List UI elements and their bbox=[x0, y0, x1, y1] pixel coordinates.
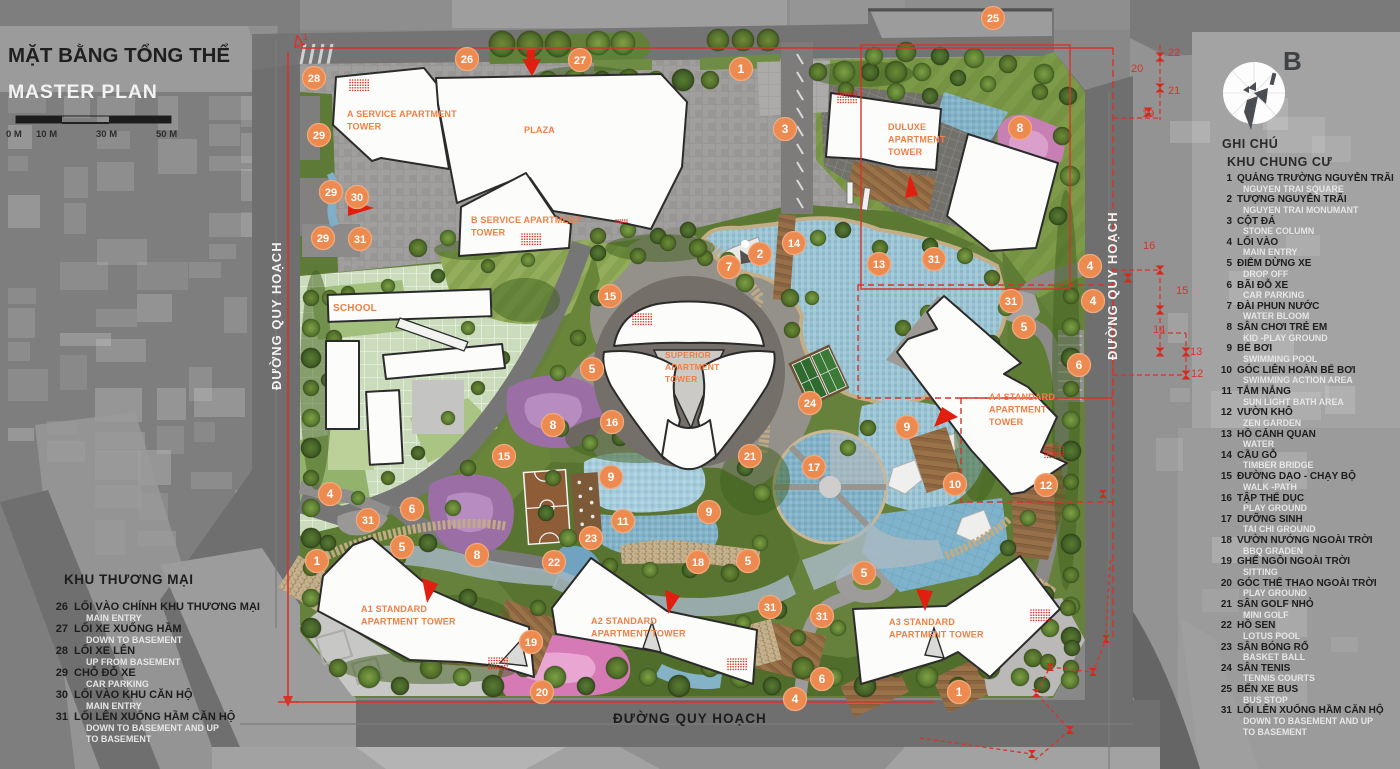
svg-text:TENNIS COURTS: TENNIS COURTS bbox=[1243, 673, 1315, 683]
svg-text:8: 8 bbox=[1226, 322, 1232, 333]
svg-text:VƯỜN NƯỚNG NGOÀI TRỜI: VƯỜN NƯỚNG NGOÀI TRỜI bbox=[1237, 533, 1373, 546]
svg-text:4: 4 bbox=[1090, 294, 1097, 308]
svg-text:11: 11 bbox=[1221, 386, 1232, 397]
svg-text:31: 31 bbox=[56, 711, 68, 723]
svg-text:17: 17 bbox=[1221, 514, 1233, 525]
svg-text:LOTUS POOL: LOTUS POOL bbox=[1243, 631, 1301, 641]
svg-text:MASTER PLAN: MASTER PLAN bbox=[8, 81, 158, 103]
svg-text:31: 31 bbox=[1005, 296, 1017, 308]
svg-text:31: 31 bbox=[764, 602, 776, 614]
svg-text:KID -PLAY GROUND: KID -PLAY GROUND bbox=[1243, 333, 1328, 343]
svg-text:LỐI LÊN XUỐNG HẦM CĂN HỘ: LỐI LÊN XUỐNG HẦM CĂN HỘ bbox=[74, 709, 236, 723]
svg-text:TƯỢNG NGUYỄN TRÃI: TƯỢNG NGUYỄN TRÃI bbox=[1237, 192, 1347, 205]
svg-text:4: 4 bbox=[1226, 237, 1232, 248]
svg-text:2: 2 bbox=[757, 247, 764, 261]
svg-text:6: 6 bbox=[409, 502, 416, 516]
svg-text:SÂN CHƠI TRẺ EM: SÂN CHƠI TRẺ EM bbox=[1237, 320, 1327, 333]
svg-text:31: 31 bbox=[354, 234, 366, 246]
svg-text:BẾN XE BUS: BẾN XE BUS bbox=[1237, 682, 1298, 695]
svg-text:25: 25 bbox=[987, 13, 999, 25]
svg-text:26: 26 bbox=[461, 54, 473, 66]
svg-text:24: 24 bbox=[1221, 663, 1233, 674]
svg-text:15: 15 bbox=[498, 451, 510, 463]
svg-text:WATER: WATER bbox=[1243, 439, 1275, 449]
svg-text:4: 4 bbox=[1087, 259, 1094, 273]
svg-text:22: 22 bbox=[1221, 620, 1233, 631]
svg-text:BASKET BALL: BASKET BALL bbox=[1243, 652, 1306, 662]
svg-text:9: 9 bbox=[608, 470, 615, 484]
svg-text:19: 19 bbox=[1221, 556, 1233, 567]
svg-text:3: 3 bbox=[782, 122, 789, 136]
svg-text:12: 12 bbox=[1040, 480, 1052, 492]
svg-text:LỐI XE LÊN: LỐI XE LÊN bbox=[74, 643, 135, 657]
svg-text:29: 29 bbox=[317, 233, 329, 245]
svg-text:SUN LIGHT BATH AREA: SUN LIGHT BATH AREA bbox=[1243, 397, 1344, 407]
svg-text:SCHOOL: SCHOOL bbox=[333, 303, 377, 314]
svg-text:27: 27 bbox=[56, 623, 68, 635]
svg-text:ZEN GARDEN: ZEN GARDEN bbox=[1243, 418, 1301, 428]
svg-text:CHỖ ĐỖ XE: CHỖ ĐỖ XE bbox=[74, 666, 136, 679]
svg-text:9: 9 bbox=[904, 420, 911, 434]
svg-text:8: 8 bbox=[550, 418, 557, 432]
svg-text:CAR PARKING: CAR PARKING bbox=[86, 679, 149, 689]
svg-text:ĐƯỜNG QUY HOẠCH: ĐƯỜNG QUY HOẠCH bbox=[613, 711, 767, 726]
svg-text:21: 21 bbox=[744, 451, 756, 463]
svg-text:16: 16 bbox=[1143, 240, 1155, 252]
svg-text:MAIN ENTRY: MAIN ENTRY bbox=[86, 613, 142, 623]
svg-text:21: 21 bbox=[1168, 85, 1180, 97]
svg-text:14: 14 bbox=[788, 238, 801, 250]
svg-text:19: 19 bbox=[1142, 108, 1154, 120]
svg-text:21: 21 bbox=[1221, 599, 1233, 610]
svg-text:30: 30 bbox=[351, 192, 363, 204]
svg-text:4: 4 bbox=[327, 487, 334, 501]
svg-text:23: 23 bbox=[1221, 642, 1233, 653]
svg-text:10: 10 bbox=[949, 479, 961, 491]
svg-text:11: 11 bbox=[617, 516, 629, 528]
svg-text:16: 16 bbox=[606, 417, 618, 429]
svg-text:KHU CHUNG CƯ: KHU CHUNG CƯ bbox=[1227, 155, 1332, 169]
svg-text:10: 10 bbox=[1221, 365, 1233, 376]
svg-text:7: 7 bbox=[1226, 301, 1232, 312]
svg-text:20: 20 bbox=[536, 687, 548, 699]
svg-text:9: 9 bbox=[706, 505, 713, 519]
svg-text:GHI CHÚ: GHI CHÚ bbox=[1222, 136, 1278, 151]
svg-text:SWIMMING POOL: SWIMMING POOL bbox=[1243, 354, 1318, 364]
svg-text:DOWN TO BASEMENT: DOWN TO BASEMENT bbox=[86, 635, 183, 645]
svg-text:TẮM NẮNG: TẮM NẮNG bbox=[1237, 384, 1291, 397]
svg-text:BBQ GRADEN: BBQ GRADEN bbox=[1243, 546, 1303, 556]
svg-text:30: 30 bbox=[56, 689, 68, 701]
svg-text:SÂN GOLF NHỎ: SÂN GOLF NHỎ bbox=[1237, 597, 1314, 610]
svg-text:BUS STOP: BUS STOP bbox=[1243, 695, 1288, 705]
svg-text:50 M: 50 M bbox=[156, 129, 177, 140]
svg-text:31: 31 bbox=[1221, 705, 1233, 716]
svg-text:6: 6 bbox=[819, 672, 826, 686]
svg-text:26: 26 bbox=[56, 601, 68, 613]
svg-text:LỐI VÀO KHU CĂN HỘ: LỐI VÀO KHU CĂN HỘ bbox=[74, 687, 193, 701]
svg-text:0 M: 0 M bbox=[6, 129, 22, 140]
svg-text:14: 14 bbox=[1221, 450, 1233, 461]
svg-text:25: 25 bbox=[1221, 684, 1233, 695]
svg-text:1: 1 bbox=[314, 554, 321, 568]
svg-text:28: 28 bbox=[56, 645, 68, 657]
svg-text:STONE COLUMN: STONE COLUMN bbox=[1243, 226, 1314, 236]
svg-text:5: 5 bbox=[861, 566, 868, 580]
svg-text:13: 13 bbox=[1190, 346, 1202, 358]
svg-text:18: 18 bbox=[1221, 535, 1233, 546]
svg-text:7: 7 bbox=[726, 260, 733, 274]
svg-text:27: 27 bbox=[574, 55, 586, 67]
svg-text:B: B bbox=[1283, 46, 1302, 76]
svg-text:15: 15 bbox=[1221, 471, 1233, 482]
svg-text:MAIN ENTRY: MAIN ENTRY bbox=[86, 701, 142, 711]
svg-text:BỂ BƠI: BỂ BƠI bbox=[1237, 341, 1272, 354]
svg-text:20: 20 bbox=[1131, 63, 1143, 75]
svg-text:31: 31 bbox=[928, 254, 940, 266]
svg-text:ĐƯỜNG QUY HOẠCH: ĐƯỜNG QUY HOẠCH bbox=[1105, 211, 1120, 360]
svg-text:GHẾ NGỒI NGOÀI TRỜI: GHẾ NGỒI NGOÀI TRỜI bbox=[1237, 554, 1350, 567]
svg-text:30 M: 30 M bbox=[96, 129, 117, 140]
svg-text:1: 1 bbox=[956, 685, 963, 699]
svg-text:8: 8 bbox=[474, 548, 481, 562]
svg-text:31: 31 bbox=[816, 611, 828, 623]
svg-text:SITTING: SITTING bbox=[1243, 567, 1278, 577]
svg-text:22: 22 bbox=[548, 557, 560, 569]
svg-text:12: 12 bbox=[1191, 368, 1203, 380]
svg-text:15: 15 bbox=[1176, 285, 1188, 297]
svg-text:6: 6 bbox=[1226, 280, 1232, 291]
svg-text:5: 5 bbox=[1021, 320, 1028, 334]
svg-text:18: 18 bbox=[692, 557, 704, 569]
svg-text:13: 13 bbox=[873, 259, 885, 271]
svg-text:ĐƯỜNG DẠO - CHẠY BỘ: ĐƯỜNG DẠO - CHẠY BỘ bbox=[1237, 469, 1356, 482]
svg-text:TAI CHI GROUND: TAI CHI GROUND bbox=[1243, 524, 1316, 534]
svg-text:SWIMMING ACTION AREA: SWIMMING ACTION AREA bbox=[1243, 375, 1353, 385]
svg-text:2: 2 bbox=[1226, 194, 1232, 205]
svg-text:MAIN ENTRY: MAIN ENTRY bbox=[1243, 247, 1298, 257]
svg-text:LỐI LÊN XUỐNG HẦM CĂN HỘ: LỐI LÊN XUỐNG HẦM CĂN HỘ bbox=[1237, 702, 1384, 716]
svg-text:28: 28 bbox=[308, 73, 320, 85]
svg-text:1: 1 bbox=[303, 32, 308, 42]
svg-text:ĐIỂM DỪNG XE: ĐIỂM DỪNG XE bbox=[1237, 256, 1312, 269]
svg-text:29: 29 bbox=[56, 667, 68, 679]
svg-text:9: 9 bbox=[1226, 343, 1232, 354]
svg-text:4: 4 bbox=[792, 692, 799, 706]
svg-text:NGUYEN TRAI MONUMANT: NGUYEN TRAI MONUMANT bbox=[1243, 205, 1359, 215]
svg-text:22: 22 bbox=[1168, 47, 1180, 59]
svg-text:13: 13 bbox=[1221, 429, 1233, 440]
svg-text:NGUYEN TRAI SQUARE: NGUYEN TRAI SQUARE bbox=[1243, 184, 1344, 194]
svg-text:HỒ SEN: HỒ SEN bbox=[1237, 618, 1275, 631]
svg-text:6: 6 bbox=[1076, 358, 1083, 372]
svg-text:PLAY GROUND: PLAY GROUND bbox=[1243, 588, 1307, 598]
svg-text:LỐI XE XUỐNG HẦM: LỐI XE XUỐNG HẦM bbox=[74, 621, 182, 635]
svg-text:WALK -PATH: WALK -PATH bbox=[1243, 482, 1297, 492]
svg-text:CAR PARKING: CAR PARKING bbox=[1243, 290, 1305, 300]
svg-text:23: 23 bbox=[585, 533, 597, 545]
svg-text:5: 5 bbox=[745, 554, 752, 568]
svg-text:12: 12 bbox=[1221, 407, 1233, 418]
svg-text:ĐƯỜNG QUY HOẠCH: ĐƯỜNG QUY HOẠCH bbox=[269, 241, 284, 390]
svg-text:14: 14 bbox=[1153, 324, 1165, 336]
svg-text:15: 15 bbox=[604, 291, 616, 303]
svg-text:5: 5 bbox=[1226, 258, 1232, 269]
svg-text:VƯỜN KHÔ: VƯỜN KHÔ bbox=[1237, 405, 1293, 418]
svg-text:PLAY GROUND: PLAY GROUND bbox=[1243, 503, 1307, 513]
svg-text:TO BASEMENT: TO BASEMENT bbox=[1243, 727, 1307, 737]
svg-text:DROP OFF: DROP OFF bbox=[1243, 269, 1289, 279]
svg-text:29: 29 bbox=[325, 187, 337, 199]
svg-text:TIMBER BRIDGE: TIMBER BRIDGE bbox=[1243, 460, 1314, 470]
svg-text:DOWN TO BASEMENT AND UP: DOWN TO BASEMENT AND UP bbox=[1243, 716, 1373, 726]
svg-text:5: 5 bbox=[399, 540, 406, 554]
svg-text:QUẢNG TRƯỜNG NGUYỄN TRÃI: QUẢNG TRƯỜNG NGUYỄN TRÃI bbox=[1237, 171, 1394, 184]
svg-text:10 M: 10 M bbox=[36, 129, 57, 140]
svg-text:16: 16 bbox=[1221, 493, 1233, 504]
svg-text:24: 24 bbox=[804, 398, 817, 410]
svg-text:1: 1 bbox=[1226, 173, 1232, 184]
svg-text:8: 8 bbox=[1017, 121, 1024, 135]
svg-text:31: 31 bbox=[362, 515, 374, 527]
svg-text:UP FROM BASEMENT: UP FROM BASEMENT bbox=[86, 657, 181, 667]
svg-text:TO BASEMENT: TO BASEMENT bbox=[86, 734, 152, 744]
svg-text:PLAZA: PLAZA bbox=[524, 125, 555, 135]
svg-text:3: 3 bbox=[1226, 216, 1232, 227]
svg-text:19: 19 bbox=[525, 637, 537, 649]
svg-text:MẶT BẰNG TỔNG THỂ: MẶT BẰNG TỔNG THỂ bbox=[8, 43, 230, 67]
svg-text:17: 17 bbox=[808, 462, 820, 474]
svg-text:MINI GOLF: MINI GOLF bbox=[1243, 610, 1289, 620]
svg-text:KHU THƯƠNG MẠI: KHU THƯƠNG MẠI bbox=[64, 572, 193, 587]
svg-text:WATER BLOOM: WATER BLOOM bbox=[1243, 311, 1309, 321]
svg-text:DOWN TO BASEMENT AND UP: DOWN TO BASEMENT AND UP bbox=[86, 723, 219, 733]
svg-text:29: 29 bbox=[313, 130, 325, 142]
svg-text:LỐI VÀO CHÍNH KHU THƯƠNG MẠI: LỐI VÀO CHÍNH KHU THƯƠNG MẠI bbox=[74, 599, 260, 613]
svg-text:20: 20 bbox=[1221, 578, 1233, 589]
svg-text:LỐI VÀO: LỐI VÀO bbox=[1237, 234, 1278, 248]
svg-text:1: 1 bbox=[738, 62, 745, 76]
svg-text:5: 5 bbox=[589, 362, 596, 376]
